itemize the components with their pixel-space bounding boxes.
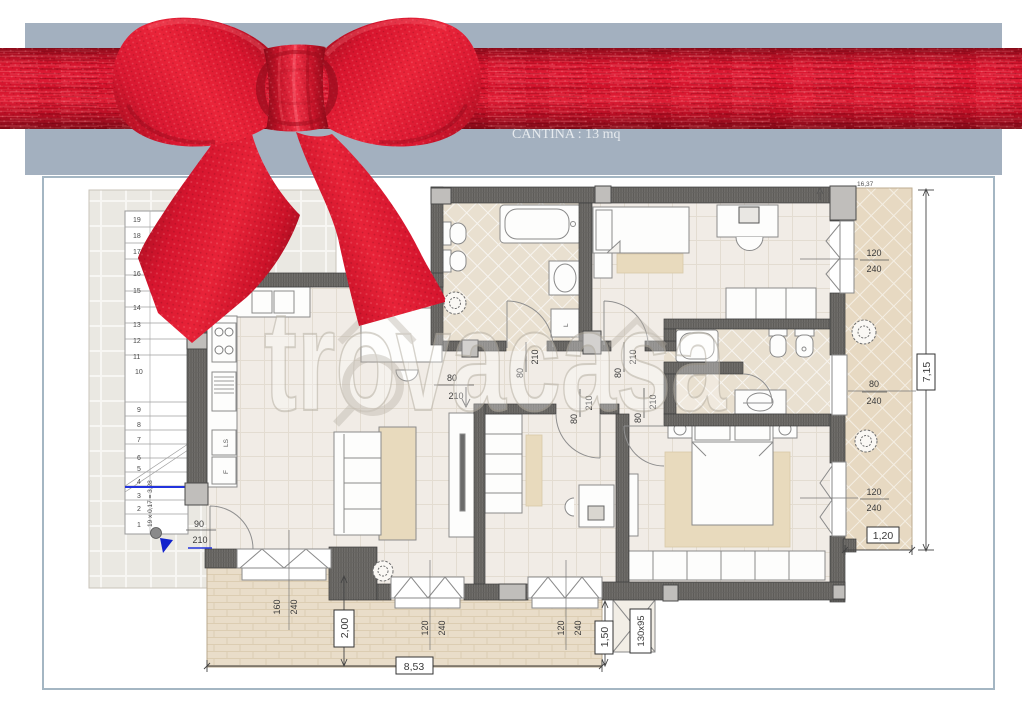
svg-text:240: 240 xyxy=(573,620,583,635)
svg-text:120: 120 xyxy=(866,248,881,258)
svg-text:80: 80 xyxy=(869,379,879,389)
svg-text:14: 14 xyxy=(133,305,141,312)
svg-text:2: 2 xyxy=(137,506,141,513)
svg-text:240: 240 xyxy=(437,620,447,635)
svg-text:18: 18 xyxy=(133,233,141,240)
svg-text:90: 90 xyxy=(194,519,204,529)
svg-text:120: 120 xyxy=(556,620,566,635)
svg-text:CANTINA : 13 mq: CANTINA : 13 mq xyxy=(512,127,621,142)
svg-text:9: 9 xyxy=(137,407,141,414)
svg-text:trovacasa: trovacasa xyxy=(264,280,727,441)
svg-text:16: 16 xyxy=(133,271,141,278)
svg-text:6: 6 xyxy=(137,455,141,462)
svg-text:5: 5 xyxy=(137,466,141,473)
svg-text:240: 240 xyxy=(866,396,881,406)
svg-text:120: 120 xyxy=(420,620,430,635)
svg-text:LS: LS xyxy=(223,438,230,447)
svg-text:240: 240 xyxy=(289,599,299,614)
svg-text:1: 1 xyxy=(137,522,141,529)
svg-text:1,50: 1,50 xyxy=(599,627,611,648)
svg-text:240: 240 xyxy=(866,264,881,274)
svg-text:160: 160 xyxy=(272,599,282,614)
svg-text:15: 15 xyxy=(133,288,141,295)
svg-text:10: 10 xyxy=(135,369,143,376)
svg-text:2,00: 2,00 xyxy=(339,618,351,639)
svg-text:3: 3 xyxy=(137,493,141,500)
svg-text:19: 19 xyxy=(133,217,141,224)
svg-text:130x95: 130x95 xyxy=(636,615,647,646)
svg-text:240: 240 xyxy=(866,503,881,513)
svg-text:16,37: 16,37 xyxy=(857,181,874,188)
svg-text:1,20: 1,20 xyxy=(873,530,894,542)
svg-text:8: 8 xyxy=(137,422,141,429)
svg-text:4: 4 xyxy=(137,479,141,486)
svg-text:13: 13 xyxy=(133,322,141,329)
svg-text:7,15: 7,15 xyxy=(921,362,933,383)
svg-text:12: 12 xyxy=(133,338,141,345)
svg-text:11: 11 xyxy=(133,354,140,361)
svg-text:120: 120 xyxy=(866,487,881,497)
svg-text:210: 210 xyxy=(192,535,207,545)
svg-text:F: F xyxy=(223,470,230,474)
svg-text:7: 7 xyxy=(137,437,141,444)
svg-text:8,53: 8,53 xyxy=(404,661,425,673)
